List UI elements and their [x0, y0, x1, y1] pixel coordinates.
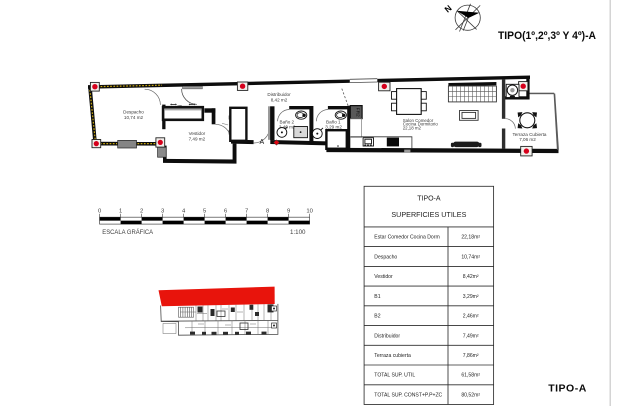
svg-text:8,42 m2: 8,42 m2 [271, 98, 288, 103]
svg-text:Estar Comedor Cocina Dorm: Estar Comedor Cocina Dorm [374, 235, 439, 241]
svg-text:1:100: 1:100 [290, 229, 306, 236]
svg-text:Distribuidor: Distribuidor [267, 92, 291, 97]
svg-text:1: 1 [119, 209, 122, 215]
svg-text:7,49 m2: 7,49 m2 [189, 137, 206, 142]
svg-text:10,74 m2: 10,74 m2 [124, 115, 144, 120]
svg-text:TIPO-A: TIPO-A [548, 383, 587, 395]
svg-text:7: 7 [245, 209, 248, 215]
svg-text:22,18 m2: 22,18 m2 [403, 125, 422, 130]
svg-text:Despacho: Despacho [374, 254, 397, 260]
svg-text:TIPO(1º,2º,3º Y 4º)-A: TIPO(1º,2º,3º Y 4º)-A [498, 30, 596, 42]
svg-text:8,42m²: 8,42m² [463, 274, 479, 280]
svg-text:80,52m²: 80,52m² [461, 393, 480, 399]
svg-text:TOTAL SUP. CONST+P.P+ZC: TOTAL SUP. CONST+P.P+ZC [374, 393, 442, 399]
svg-text:TIPO-A: TIPO-A [417, 196, 441, 203]
svg-text:7,86m²: 7,86m² [463, 353, 479, 359]
svg-text:Terraza cubierta: Terraza cubierta [374, 353, 411, 359]
svg-text:SUPERFICIES UTILES: SUPERFICIES UTILES [391, 210, 466, 219]
svg-text:3,29m²: 3,29m² [463, 294, 479, 300]
svg-text:Vestidor: Vestidor [189, 131, 206, 136]
svg-text:ESCALA GRÁFICA: ESCALA GRÁFICA [102, 229, 154, 236]
svg-text:TOTAL SUP. UTIL: TOTAL SUP. UTIL [374, 373, 415, 379]
svg-text:B2: B2 [374, 314, 380, 320]
svg-text:10,74m²: 10,74m² [461, 254, 480, 260]
svg-text:Distribuidor: Distribuidor [374, 333, 400, 339]
svg-text:22,18m²: 22,18m² [461, 235, 480, 241]
svg-text:3,29 m2: 3,29 m2 [325, 124, 342, 129]
svg-text:7,49m²: 7,49m² [463, 333, 479, 339]
svg-text:7,06 m2: 7,06 m2 [519, 137, 536, 142]
svg-text:FR2: FR2 [354, 108, 360, 117]
svg-text:2,46m²: 2,46m² [463, 314, 479, 320]
svg-text:61,58m²: 61,58m² [461, 373, 480, 379]
svg-text:10: 10 [306, 209, 313, 215]
svg-text:A: A [259, 139, 264, 146]
svg-text:2: 2 [140, 209, 143, 215]
svg-text:Despacho: Despacho [123, 109, 144, 114]
svg-text:9: 9 [287, 209, 290, 215]
svg-text:B1: B1 [374, 294, 380, 300]
svg-text:Vestidor: Vestidor [374, 274, 393, 280]
